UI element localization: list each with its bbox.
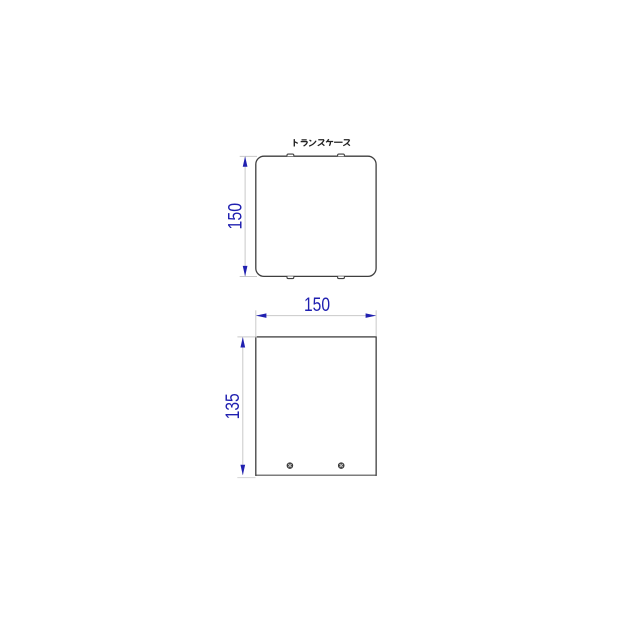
svg-text:150: 150 bbox=[225, 203, 246, 230]
svg-text:135: 135 bbox=[223, 393, 244, 419]
svg-text:150: 150 bbox=[304, 295, 330, 316]
